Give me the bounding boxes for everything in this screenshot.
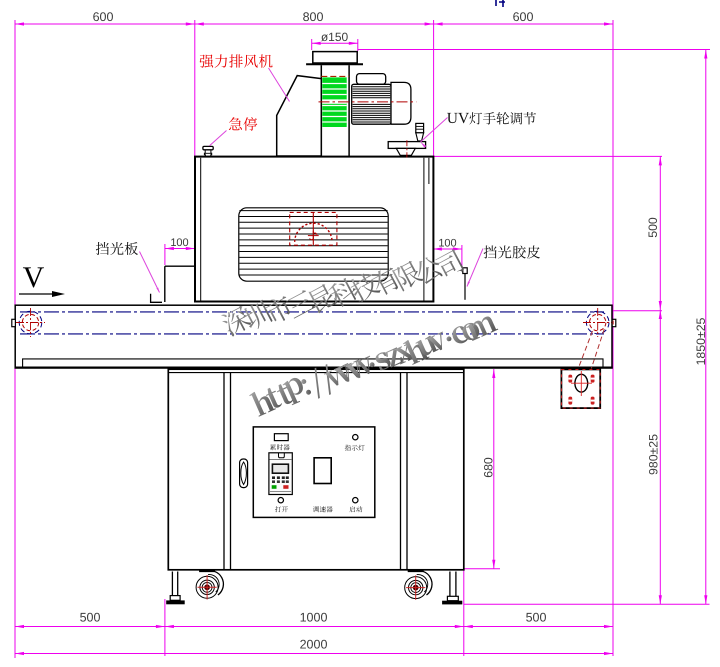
- svg-text:V: V: [23, 261, 45, 294]
- svg-text:UV: UV: [447, 110, 470, 127]
- svg-text:600: 600: [513, 10, 534, 24]
- svg-text:680: 680: [481, 457, 495, 478]
- svg-text:1000: 1000: [300, 610, 328, 624]
- svg-text:1850±25: 1850±25: [694, 317, 708, 365]
- svg-text:600: 600: [93, 10, 114, 24]
- svg-text:980±25: 980±25: [646, 434, 660, 475]
- svg-text:500: 500: [526, 610, 547, 624]
- svg-text:500: 500: [80, 610, 101, 624]
- svg-text:100: 100: [438, 237, 456, 249]
- svg-text:800: 800: [303, 10, 324, 24]
- svg-text:100: 100: [170, 237, 188, 249]
- svg-text:2000: 2000: [300, 637, 328, 651]
- svg-text:500: 500: [646, 217, 660, 238]
- svg-text:ø150: ø150: [321, 30, 349, 44]
